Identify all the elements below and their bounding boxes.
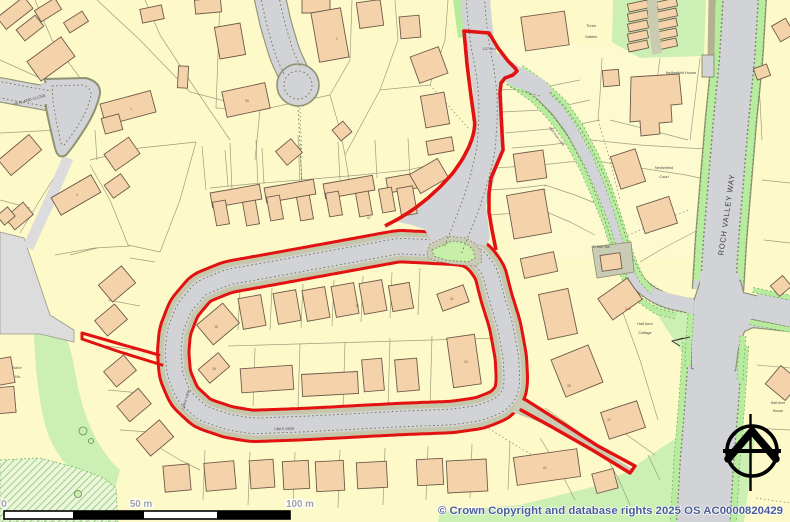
svg-text:100 m: 100 m	[286, 499, 314, 510]
svg-text:51: 51	[450, 297, 454, 301]
svg-text:18: 18	[214, 325, 218, 329]
svg-text:61: 61	[543, 466, 547, 470]
svg-text:Half Acre: Half Acre	[771, 401, 786, 405]
svg-text:0: 0	[1, 498, 7, 510]
svg-text:House: House	[773, 409, 783, 413]
svg-text:Netherfield: Netherfield	[655, 166, 673, 170]
svg-text:47: 47	[607, 418, 611, 422]
svg-text:Stable: Stable	[12, 366, 22, 370]
svg-text:2: 2	[336, 37, 338, 41]
svg-text:4: 4	[76, 193, 78, 197]
svg-text:50 m: 50 m	[130, 499, 153, 510]
svg-text:Cottage: Cottage	[638, 331, 651, 335]
svg-text:26: 26	[212, 367, 216, 371]
svg-text:© Crown Copyright and database: © Crown Copyright and database rights 20…	[438, 505, 783, 517]
svg-text:67: 67	[367, 216, 371, 220]
svg-text:1: 1	[130, 107, 132, 111]
svg-text:1-2: 1-2	[625, 306, 632, 311]
svg-text:34: 34	[464, 360, 468, 364]
svg-text:14: 14	[355, 304, 359, 308]
svg-text:55: 55	[567, 384, 571, 388]
svg-text:Gables: Gables	[585, 35, 597, 39]
svg-text:LINKS VIEW: LINKS VIEW	[274, 427, 295, 431]
svg-text:55: 55	[245, 99, 249, 103]
svg-text:El Sub Sta: El Sub Sta	[593, 245, 610, 249]
svg-text:Netherfield House: Netherfield House	[666, 71, 696, 75]
svg-text:Half Acre: Half Acre	[637, 322, 652, 326]
svg-text:Three: Three	[586, 24, 596, 28]
svg-text:137.8m: 137.8m	[482, 46, 496, 51]
svg-text:Hills: Hills	[14, 375, 21, 379]
svg-text:Court: Court	[659, 175, 669, 179]
